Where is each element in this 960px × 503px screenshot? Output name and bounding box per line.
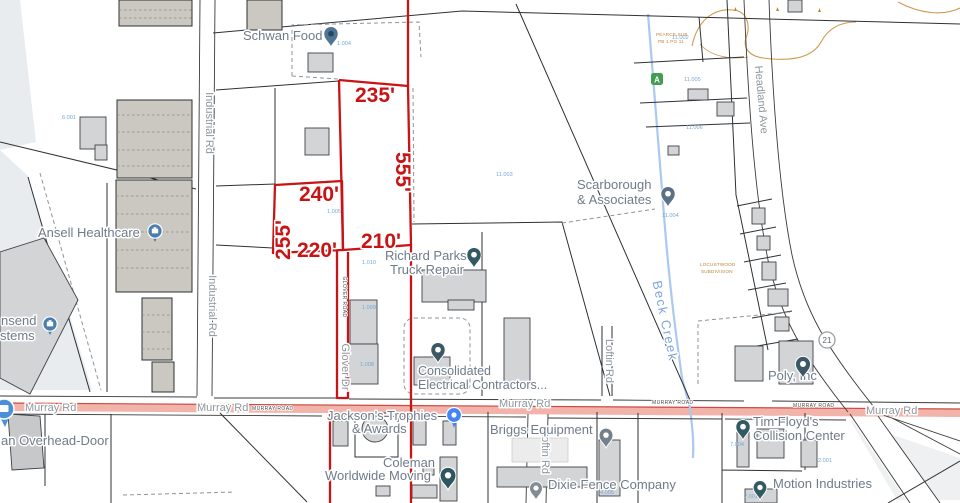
poi-label-ansell[interactable]: Ansell Healthcare: [38, 225, 140, 240]
road-label-murray-2: Murray Rd: [197, 402, 248, 414]
road-label-industrial-2: Industrial Rd: [206, 275, 218, 337]
road-label-murray-4: Murray Rd: [866, 405, 917, 417]
parcel-number: 11.003: [496, 172, 513, 178]
poi-label-overhead-door[interactable]: an Overhead-Door: [1, 433, 109, 448]
pin-dot-icon: [603, 432, 609, 438]
road-label-murray-small-2: MURRAY ROAD: [652, 400, 693, 406]
poi-label-scarborough-2[interactable]: & Associates: [577, 192, 652, 207]
dimension-west-side: 255': [272, 220, 295, 260]
road-label-loftin-upper: Loftin Rd: [603, 339, 615, 383]
dimension-lower-width: 220': [297, 239, 337, 262]
route-21-shield: 21: [819, 332, 835, 348]
dimension-upper-width: 240': [299, 183, 339, 206]
dimension-top-width: 235': [355, 84, 395, 107]
map-svg: 235' 555' 240' 255' 220' 210' Murray Rd …: [0, 0, 960, 503]
pin-dot-icon: [445, 472, 451, 478]
poi-label-coleman-2[interactable]: Worldwide Moving: [325, 468, 431, 483]
trophy-icon: [451, 412, 456, 417]
poi-label-schwan[interactable]: Schwan Food: [243, 28, 323, 43]
door-icon: [0, 405, 9, 412]
road-label-glover-road-small: GLOVER ROAD: [341, 276, 347, 317]
poi-label-tim-floyd-1[interactable]: Tim Floyd's: [753, 414, 819, 429]
parcel-number: 1.005: [327, 209, 341, 215]
poi-label-tim-floyd-2[interactable]: Collision Center: [753, 428, 845, 443]
road-label-murray-3: Murray Rd: [499, 398, 550, 410]
road-label-industrial-1: Industrial Rd: [203, 92, 215, 154]
pin-dot-icon: [435, 347, 441, 353]
pin-dot-icon: [665, 191, 671, 197]
poi-label-townsend-1[interactable]: nsend: [1, 313, 36, 328]
poi-label-consolidated-1[interactable]: Consolidated: [418, 364, 491, 378]
poi-label-jackson-2[interactable]: & Awards: [352, 421, 407, 436]
pin-dot-icon: [533, 486, 538, 491]
poi-label-consolidated-2[interactable]: Electrical Contractors...: [418, 378, 547, 392]
pin-dot-icon: [740, 424, 746, 430]
poi-label-poly[interactable]: Poly, Inc: [768, 368, 817, 383]
subdivision-label: LOCUSTWOOD: [700, 262, 736, 267]
subdivision-label: PB 1 PG 11: [658, 39, 684, 44]
parcel-number: 11.004: [662, 213, 679, 219]
parcel-number: 4.005: [600, 490, 614, 496]
poi-label-briggs[interactable]: Briggs Equipment: [490, 422, 593, 437]
parcel-number: 1.004: [337, 41, 351, 47]
route-shield-number: 21: [823, 336, 832, 345]
road-label-murray-small-1: MURRAY ROAD: [252, 406, 293, 412]
badge-a-letter: A: [654, 76, 660, 85]
dimension-east-side: 555': [391, 152, 414, 192]
road-label-murray-1: Murray Rd: [25, 402, 76, 414]
road-label-murray-small-3: MURRAY ROAD: [793, 403, 834, 409]
parcel-number: 1.008: [360, 362, 374, 368]
parcel-number: 1.009: [362, 305, 376, 311]
poi-label-richard-2[interactable]: Truck Repair: [390, 262, 465, 277]
parcel-number: 6.001: [62, 115, 76, 121]
parcel-number: 1.010: [362, 260, 376, 266]
parcel-number: 11.006: [686, 125, 703, 131]
poi-label-richard-1[interactable]: Richard Parks: [385, 248, 467, 263]
parcel-number: 7.004: [730, 442, 744, 448]
poi-label-scarborough-1[interactable]: Scarborough: [577, 177, 651, 192]
subdivision-label: PEARCE SUB: [656, 32, 688, 37]
pin-dot-icon: [471, 252, 477, 258]
parcel-number: 11.005: [684, 77, 701, 83]
poi-label-townsend-2[interactable]: stems: [0, 328, 35, 343]
parcel-map-canvas[interactable]: 235' 555' 240' 255' 220' 210' Murray Rd …: [0, 0, 960, 503]
pin-dot-icon: [328, 31, 334, 37]
road-label-glover-dr: Glover Dr: [339, 343, 351, 390]
pin-dot-icon: [800, 361, 806, 367]
pin-dot-icon: [757, 485, 762, 490]
parcel-number: 2.001: [818, 458, 832, 464]
poi-label-motion[interactable]: Motion Industries: [773, 476, 872, 491]
badge-a: A: [651, 73, 663, 85]
parcel-number: 7.001: [744, 494, 758, 500]
subdivision-label: SUBDIVISION: [701, 269, 733, 274]
